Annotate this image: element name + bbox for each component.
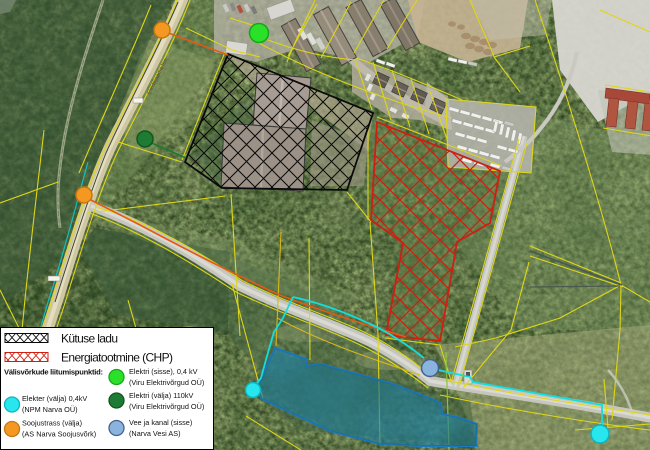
svg-text:(Narva Vesi AS): (Narva Vesi AS) xyxy=(129,429,181,438)
svg-text:Kütuse ladu: Kütuse ladu xyxy=(61,332,118,346)
svg-text:(Viru Elektrivõrgud OÜ): (Viru Elektrivõrgud OÜ) xyxy=(129,378,204,387)
svg-text:(Viru Elektrivõrgud OÜ): (Viru Elektrivõrgud OÜ) xyxy=(129,402,204,411)
svg-text:Vee ja kanal (sisse): Vee ja kanal (sisse) xyxy=(129,418,192,427)
svg-text:Elektri (välja) 110kV: Elektri (välja) 110kV xyxy=(129,391,193,400)
svg-text:(NPM Narva OÜ): (NPM Narva OÜ) xyxy=(22,405,78,414)
svg-text:Välisvõrkude liitumispunktid:: Välisvõrkude liitumispunktid: xyxy=(4,368,103,377)
svg-text:Energiatootmine (CHP): Energiatootmine (CHP) xyxy=(61,351,173,365)
svg-text:(AS Narva Soojusvõrk): (AS Narva Soojusvõrk) xyxy=(22,430,96,439)
svg-text:Soojustrass (välja): Soojustrass (välja) xyxy=(22,419,82,428)
svg-text:Elekter (välja) 0,4kV: Elekter (välja) 0,4kV xyxy=(22,394,87,403)
svg-text:Elektri (sisse), 0,4 kV: Elektri (sisse), 0,4 kV xyxy=(129,367,198,376)
